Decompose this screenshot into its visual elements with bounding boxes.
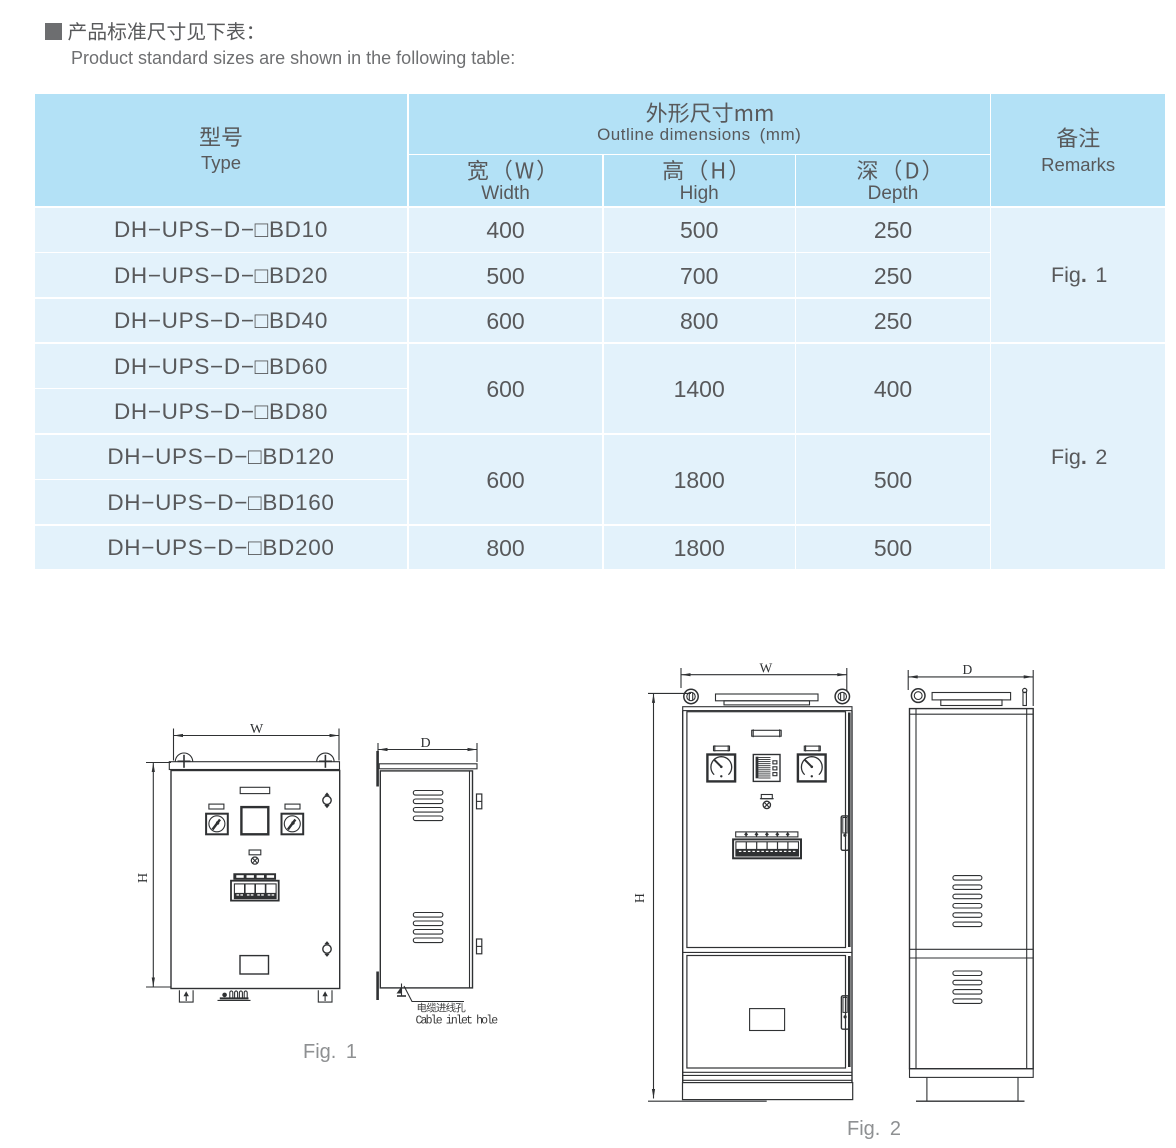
svg-text:W: W — [250, 722, 264, 737]
svg-text:D: D — [421, 736, 431, 751]
svg-text:D: D — [963, 662, 973, 677]
svg-text:H: H — [136, 873, 151, 883]
svg-text:W: W — [760, 661, 773, 676]
svg-text:Cable inlet hole: Cable inlet hole — [416, 1015, 499, 1028]
svg-text:H: H — [632, 893, 647, 903]
